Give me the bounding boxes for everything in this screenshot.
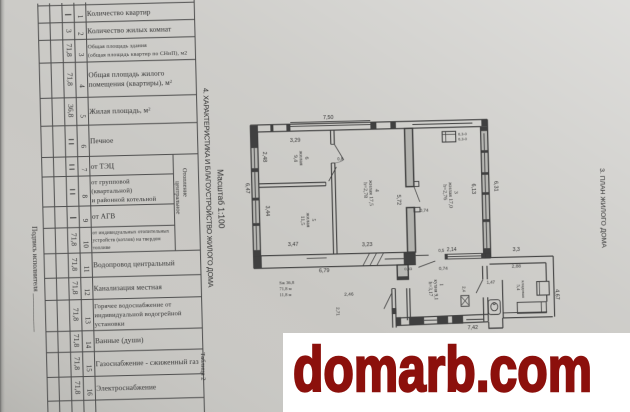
svg-text:топливе: топливе (93, 246, 112, 251)
svg-text:Ванные (души): Ванные (души) (95, 336, 144, 345)
svg-text:16: 16 (85, 389, 93, 397)
svg-text:71,8: 71,8 (69, 233, 78, 247)
svg-text:domarb.com: domarb.com (293, 335, 592, 405)
svg-text:11: 11 (82, 266, 90, 273)
svg-text:6,3-0: 6,3-0 (458, 137, 467, 141)
svg-text:Канализация местная: Канализация местная (94, 283, 163, 293)
svg-text:Масштаб 1:100: Масштаб 1:100 (215, 169, 226, 229)
svg-text:3,29: 3,29 (290, 138, 301, 144)
svg-text:12: 12 (83, 288, 91, 296)
svg-text:3,47: 3,47 (288, 242, 299, 248)
svg-text:3,23: 3,23 (362, 242, 373, 248)
svg-text:h=3,17: h=3,17 (427, 282, 433, 297)
svg-text:15: 15 (85, 365, 93, 373)
svg-text:3: 3 (64, 29, 73, 33)
svg-text:h=2,78: h=2,78 (362, 182, 368, 198)
svg-text:13: 13 (84, 317, 92, 325)
svg-text:2,46: 2,46 (344, 291, 354, 297)
svg-text:от АГВ: от АГВ (92, 212, 116, 221)
svg-text:6,31: 6,31 (492, 181, 498, 192)
svg-text:Электроснабжение: Электроснабжение (96, 383, 156, 392)
svg-text:14: 14 (84, 341, 92, 349)
svg-text:0,74: 0,74 (420, 208, 429, 213)
svg-text:от групповой: от групповой (91, 178, 130, 186)
svg-text:71,8: 71,8 (73, 357, 82, 371)
svg-text:0,33: 0,33 (404, 266, 413, 271)
svg-text:центральное: центральное (174, 181, 182, 215)
svg-text:9,4: 9,4 (292, 155, 298, 162)
svg-text:4,67: 4,67 (553, 289, 559, 300)
svg-text:Таблица 2: Таблица 2 (199, 352, 207, 380)
svg-text:71,8: 71,8 (65, 43, 74, 57)
svg-text:3,44: 3,44 (264, 206, 270, 217)
svg-text:от ТЭЦ: от ТЭЦ (91, 162, 115, 171)
svg-text:Общая площадь здания: Общая площадь здания (88, 42, 148, 50)
svg-text:Отопление: Отопление (181, 168, 189, 197)
svg-text:h=2,76: h=2,76 (441, 184, 447, 200)
svg-text:36,8: 36,8 (66, 104, 75, 118)
svg-text:71,8: 71,8 (71, 308, 80, 322)
svg-text:6,13: 6,13 (470, 184, 476, 195)
svg-text:2,4: 2,4 (461, 286, 466, 293)
svg-text:(квартальной): (квартальной) (91, 187, 132, 195)
svg-text:6,47: 6,47 (244, 183, 250, 194)
svg-text:7,42: 7,42 (467, 325, 478, 331)
svg-text:71,8: 71,8 (73, 381, 82, 395)
svg-text:71,8: 71,8 (70, 258, 79, 272)
svg-text:7,50: 7,50 (323, 115, 334, 121)
svg-text:71,8: 71,8 (71, 281, 80, 295)
svg-text:2,88: 2,88 (512, 264, 522, 270)
svg-text:установки: установки (95, 320, 125, 328)
svg-text:2,48: 2,48 (261, 152, 267, 163)
svg-text:10: 10 (82, 241, 90, 249)
svg-text:Печное: Печное (90, 137, 113, 146)
svg-text:0,5: 0,5 (438, 248, 445, 253)
svg-text:2,14: 2,14 (447, 247, 457, 253)
svg-text:2,71: 2,71 (335, 307, 340, 316)
svg-text:Количество квартир: Количество квартир (87, 8, 151, 18)
svg-text:0,8: 0,8 (337, 156, 344, 161)
svg-text:0,74: 0,74 (439, 266, 449, 271)
svg-text:71,8: 71,8 (65, 72, 74, 86)
svg-text:6,79: 6,79 (319, 268, 330, 274)
svg-text:6,3-0: 6,3-0 (458, 132, 467, 136)
svg-text:11,5: 11,5 (299, 216, 305, 226)
svg-text:5,72: 5,72 (395, 195, 401, 206)
svg-text:71,8: 71,8 (72, 334, 81, 348)
svg-text:Жилая площадь, м2: Жилая площадь, м2 (89, 106, 150, 116)
svg-text:3,3: 3,3 (513, 247, 520, 253)
svg-text:1,47: 1,47 (486, 280, 495, 285)
